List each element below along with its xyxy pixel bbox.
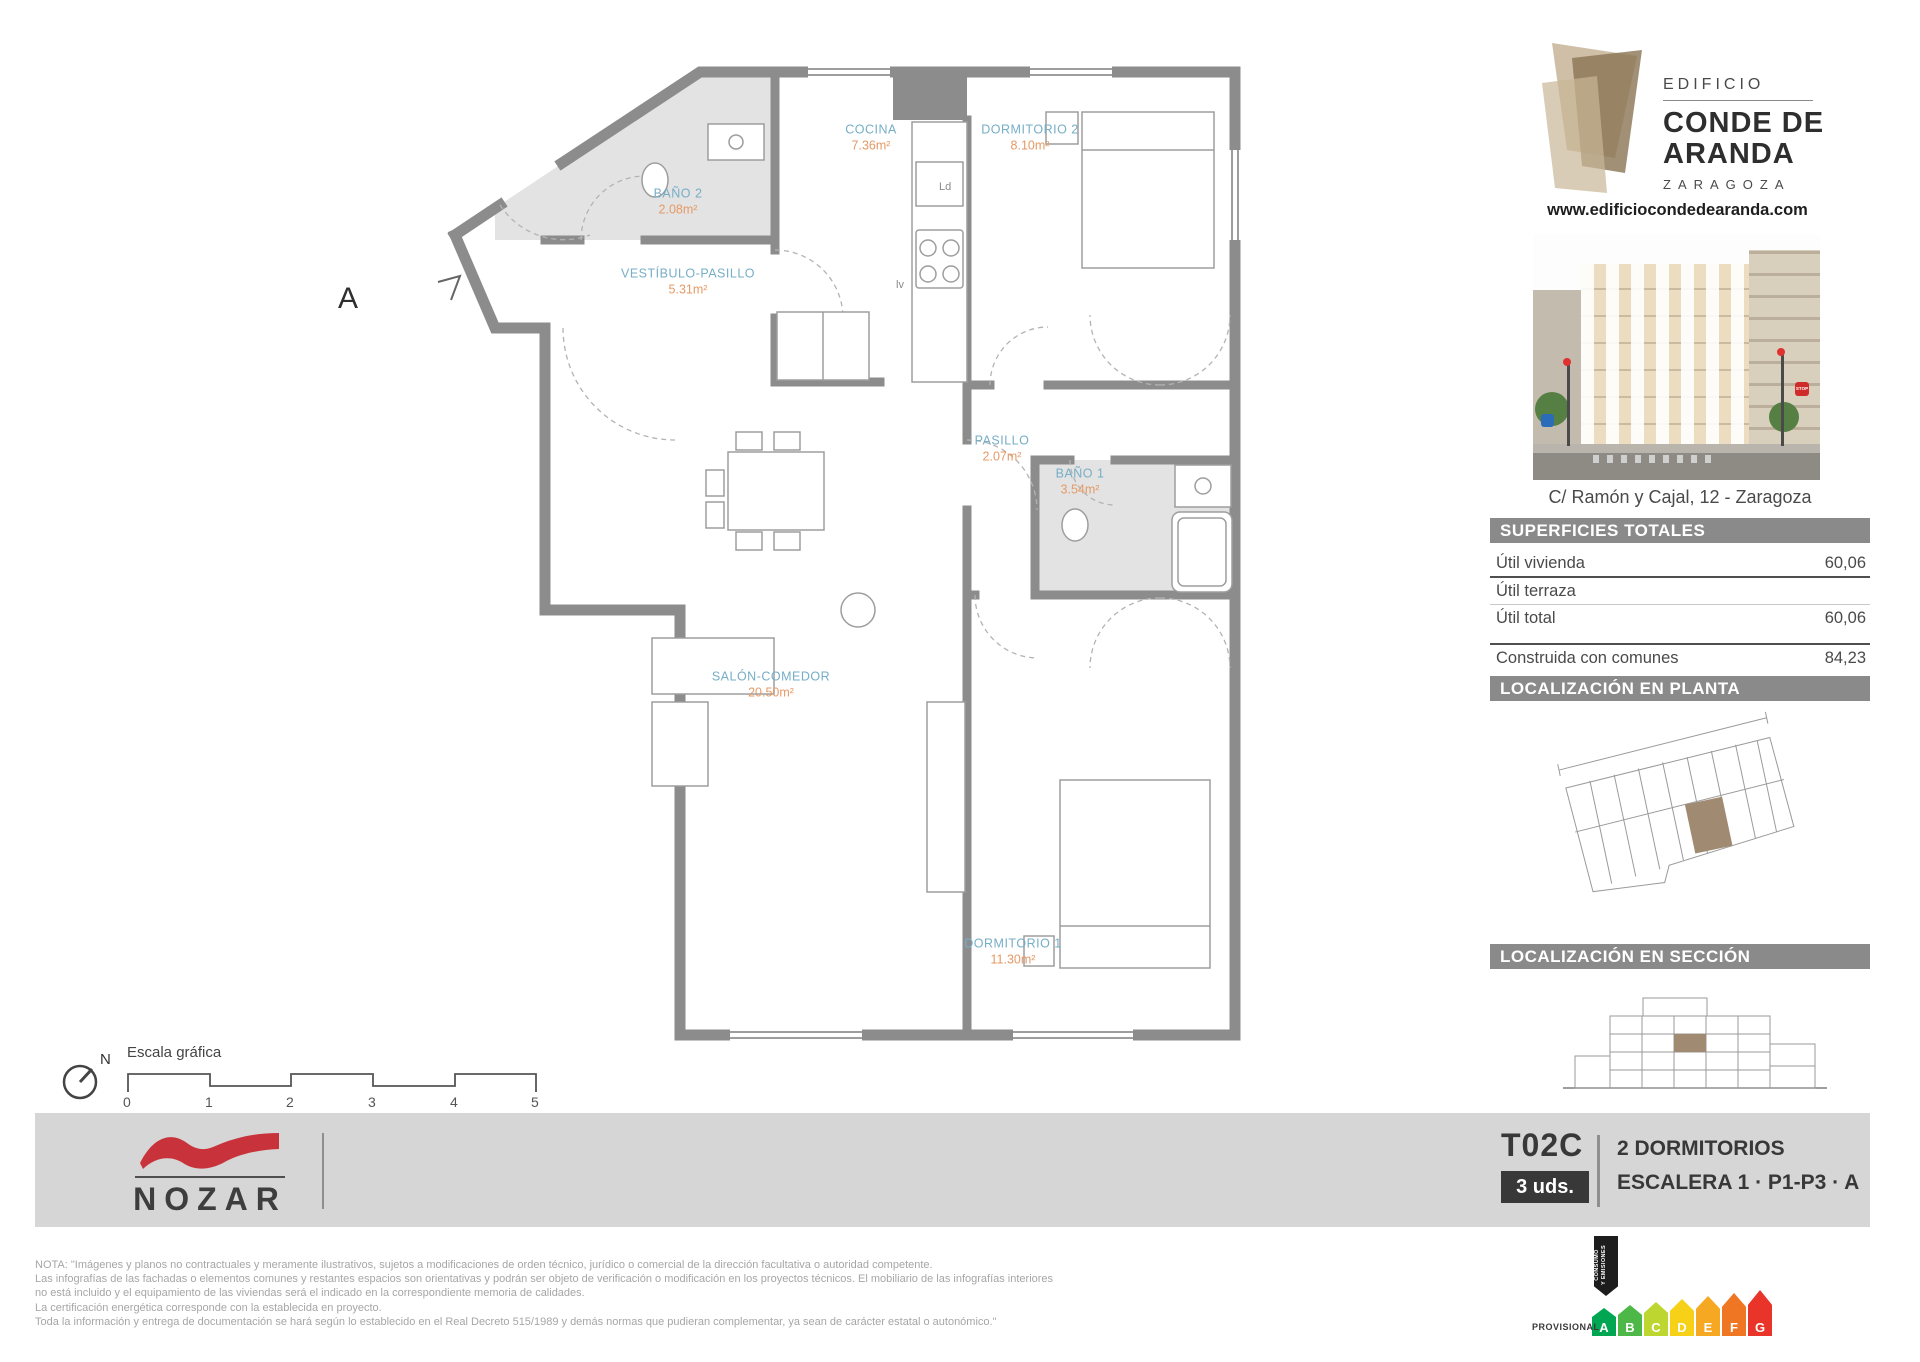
- nozar-divider: [135, 1176, 285, 1178]
- ribbon-text: CONSUMO Y EMISIONES: [1594, 1236, 1618, 1294]
- unit-code: T02C: [1501, 1127, 1583, 1164]
- row-value: 60,06: [1825, 609, 1866, 628]
- main-building: [1581, 264, 1751, 452]
- nozar-swoosh-icon: [135, 1125, 285, 1169]
- room-label-pasillo: PASILLO 2.07m²: [975, 433, 1030, 464]
- brand-name-line1: CONDE DE: [1663, 108, 1824, 139]
- brand-city: ZARAGOZA: [1663, 177, 1824, 192]
- row-value: 60,06: [1825, 554, 1866, 573]
- provisional-label: PROVISIONAL: [1532, 1322, 1600, 1332]
- location-section-diagram: [1555, 986, 1835, 1104]
- consumo-emisiones-ribbon: CONSUMO Y EMISIONES: [1594, 1236, 1618, 1296]
- tree-icon: [1769, 402, 1799, 432]
- structural-pillar: [893, 72, 967, 120]
- energy-rating-f: F: [1722, 1293, 1746, 1336]
- unit-letter: A: [338, 282, 358, 316]
- table-row: Útil vivienda 60,06: [1490, 551, 1870, 578]
- side-building: [1533, 290, 1585, 452]
- dishwasher-label: lv: [896, 279, 904, 291]
- brand-logo-text: EDIFICIO CONDE DE ARANDA ZARAGOZA: [1663, 76, 1824, 192]
- legal-line: NOTA: "Imágenes y planos no contractuale…: [35, 1258, 1325, 1272]
- north-arrow: N: [58, 1048, 120, 1102]
- brochure-page: Ld lv BAÑO 2 2.08m² COCINA 7.36m² DORMIT…: [0, 0, 1920, 1362]
- room-label-dormitorio1: DORMITORIO 1 11.30m²: [964, 936, 1061, 967]
- brand-logo-mark: [1537, 38, 1657, 196]
- row-label: Útil terraza: [1496, 582, 1576, 601]
- scale-tick: 0: [123, 1094, 131, 1110]
- row-label: Útil vivienda: [1496, 554, 1585, 573]
- table-row: Útil total 60,06: [1490, 605, 1870, 632]
- legal-line: Toda la información y entrega de documen…: [35, 1315, 1325, 1329]
- floor-plan-drawing: Ld lv: [430, 50, 1260, 1060]
- scale-bar-line: [120, 1062, 560, 1092]
- row-label: Construida con comunes: [1496, 649, 1679, 668]
- traffic-light-icon: [1563, 358, 1571, 366]
- scale-tick: 1: [205, 1094, 213, 1110]
- band-divider: [322, 1133, 324, 1209]
- brand-edificio: EDIFICIO: [1663, 76, 1824, 94]
- surfaces-header: SUPERFICIES TOTALES: [1490, 518, 1870, 543]
- table-row: Construida con comunes 84,23: [1490, 645, 1870, 672]
- developer-name: NOZAR: [125, 1181, 295, 1218]
- brand-name-line2: ARANDA: [1663, 139, 1824, 170]
- room-label-bano2: BAÑO 2 2.08m²: [654, 186, 703, 217]
- traffic-light-pole: [1781, 352, 1784, 446]
- typology: 2 DORMITORIOS: [1617, 1137, 1785, 1161]
- room-label-cocina: COCINA 7.36m²: [845, 122, 897, 153]
- table-row: Útil terraza: [1490, 578, 1870, 605]
- scale-bar: 0 1 2 3 4 5: [120, 1062, 560, 1114]
- location-plan-diagram: [1540, 710, 1820, 930]
- scale-tick: 4: [450, 1094, 458, 1110]
- traffic-light-pole: [1567, 362, 1570, 446]
- location-plan-header: LOCALIZACIÓN EN PLANTA: [1490, 676, 1870, 701]
- scale-tick: 3: [368, 1094, 376, 1110]
- crosswalk: [1593, 455, 1713, 463]
- table-spacer: [1490, 632, 1870, 645]
- legal-line: Las infografías de las fachadas o elemen…: [35, 1272, 1325, 1286]
- energy-rating-c: C: [1644, 1302, 1668, 1336]
- address: C/ Ramón y Cajal, 12 - Zaragoza: [1520, 487, 1840, 508]
- legal-note: NOTA: "Imágenes y planos no contractuale…: [35, 1258, 1325, 1329]
- energy-rating-d: D: [1670, 1299, 1694, 1336]
- energy-rating-e: E: [1696, 1296, 1720, 1336]
- location-section-header: LOCALIZACIÓN EN SECCIÓN: [1490, 944, 1870, 969]
- north-label: N: [100, 1051, 111, 1068]
- legal-line: La certificación energética corresponde …: [35, 1301, 1325, 1315]
- corner-marker: [438, 276, 460, 300]
- energy-rating-g: G: [1748, 1290, 1772, 1336]
- traffic-light-icon: [1777, 348, 1785, 356]
- washer-label: Ld: [939, 181, 951, 193]
- row-label: Útil total: [1496, 609, 1556, 628]
- room-label-vestibulo: VESTÍBULO-PASILLO 5.31m²: [621, 266, 755, 297]
- stop-sign-icon: STOP: [1795, 382, 1809, 396]
- floor-plan: Ld lv BAÑO 2 2.08m² COCINA 7.36m² DORMIT…: [430, 50, 1260, 1060]
- building-render: STOP: [1533, 234, 1820, 480]
- room-label-bano1: BAÑO 1 3.54m²: [1056, 466, 1105, 497]
- room-label-salon: SALÓN-COMEDOR 20.50m²: [712, 669, 830, 700]
- brand-divider: [1663, 100, 1813, 101]
- energy-rating: CONSUMO Y EMISIONES A B C D E F G PROVIS…: [1528, 1236, 1798, 1358]
- energy-scale: A B C D E F G: [1592, 1290, 1772, 1336]
- surfaces-table: Útil vivienda 60,06 Útil terraza Útil to…: [1490, 551, 1870, 672]
- developer-logo: NOZAR: [125, 1125, 295, 1218]
- website-link[interactable]: www.edificiocondedearanda.com: [1535, 201, 1820, 220]
- footer-band: NOZAR T02C 3 uds. 2 DORMITORIOS ESCALERA…: [35, 1113, 1870, 1227]
- scale-tick: 2: [286, 1094, 294, 1110]
- legal-line: no está incluido y el equipamiento de la…: [35, 1286, 1325, 1300]
- room-label-dormitorio2: DORMITORIO 2 8.10m²: [981, 122, 1078, 153]
- scale-tick: 5: [531, 1094, 539, 1110]
- band-divider: [1597, 1135, 1600, 1207]
- units-badge: 3 uds.: [1501, 1171, 1589, 1203]
- scale-label: Escala gráfica: [127, 1044, 221, 1061]
- location-line: ESCALERA 1 · P1-P3 · A: [1617, 1171, 1859, 1195]
- energy-rating-b: B: [1618, 1305, 1642, 1336]
- turn-sign-icon: [1541, 414, 1554, 427]
- row-value: 84,23: [1825, 649, 1866, 668]
